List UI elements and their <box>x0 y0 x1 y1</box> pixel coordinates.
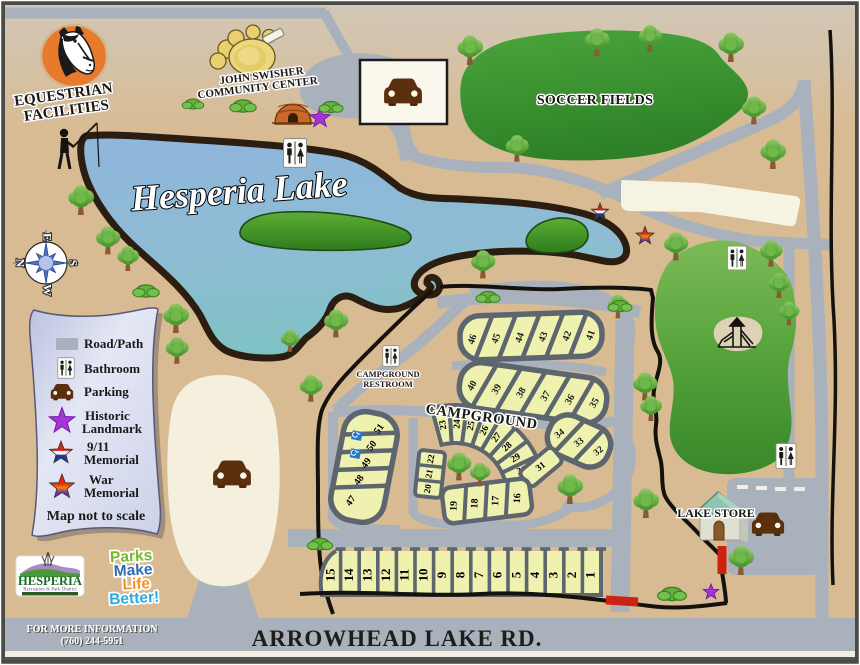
svg-text:4: 4 <box>527 571 542 578</box>
svg-text:HESPERIA: HESPERIA <box>18 574 82 588</box>
svg-text:1: 1 <box>583 572 598 579</box>
svg-text:11: 11 <box>397 569 412 581</box>
svg-text:18: 18 <box>469 498 481 509</box>
svg-text:19: 19 <box>448 501 460 512</box>
svg-text:8: 8 <box>452 571 467 578</box>
svg-text:17: 17 <box>490 496 502 507</box>
svg-text:Memorial: Memorial <box>84 485 139 500</box>
svg-text:RESTROOM: RESTROOM <box>363 379 413 389</box>
svg-text:ARROWHEAD LAKE RD.: ARROWHEAD LAKE RD. <box>252 626 543 651</box>
svg-text:FOR MORE INFORMATION: FOR MORE INFORMATION <box>27 624 159 635</box>
svg-text:N: N <box>13 259 27 268</box>
svg-text:9: 9 <box>434 571 449 578</box>
svg-text:7: 7 <box>471 571 486 578</box>
svg-text:SOCCER FIELDS: SOCCER FIELDS <box>537 93 653 108</box>
svg-text:CAMPGROUND: CAMPGROUND <box>356 369 419 379</box>
svg-text:6: 6 <box>490 571 505 578</box>
svg-text:LAKE STORE: LAKE STORE <box>677 506 754 520</box>
svg-text:13: 13 <box>359 568 374 582</box>
svg-text:Memorial: Memorial <box>84 452 139 467</box>
svg-text:S: S <box>66 260 80 267</box>
svg-text:3: 3 <box>545 571 560 578</box>
svg-text:Better!: Better! <box>109 589 160 609</box>
svg-text:Bathroom: Bathroom <box>84 361 140 376</box>
svg-text:Road/Path: Road/Path <box>84 336 144 351</box>
svg-text:5: 5 <box>508 571 523 578</box>
svg-text:15: 15 <box>322 568 337 582</box>
svg-text:14: 14 <box>341 568 356 582</box>
svg-text:E: E <box>40 233 54 241</box>
svg-text:(760) 244-5951: (760) 244-5951 <box>61 636 124 647</box>
svg-text:W: W <box>40 284 54 296</box>
svg-text:16: 16 <box>512 493 524 504</box>
svg-text:2: 2 <box>564 572 579 579</box>
svg-text:12: 12 <box>378 569 393 582</box>
svg-text:Landmark: Landmark <box>82 421 143 436</box>
svg-text:Parking: Parking <box>84 384 129 399</box>
svg-text:Map not to scale: Map not to scale <box>47 509 145 524</box>
svg-text:10: 10 <box>415 569 430 582</box>
svg-text:Recreation & Park District: Recreation & Park District <box>23 588 77 593</box>
svg-text:23: 23 <box>438 419 449 430</box>
